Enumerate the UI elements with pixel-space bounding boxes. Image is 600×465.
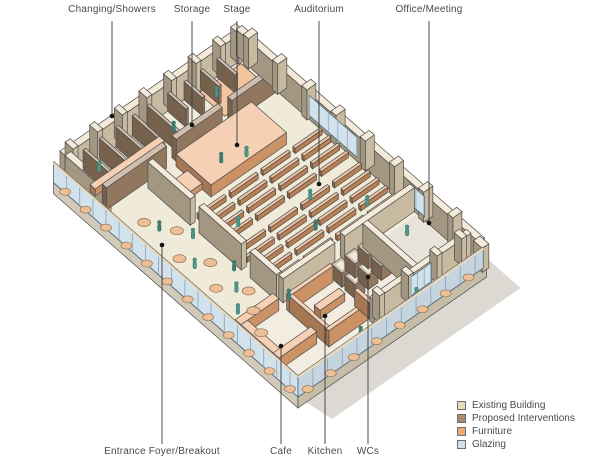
- legend-item-proposed: Proposed Interventions: [457, 412, 575, 425]
- legend-label: Existing Building: [472, 400, 545, 411]
- legend-label: Proposed Interventions: [472, 413, 575, 424]
- glazing-swatch: [457, 440, 466, 449]
- label-storage: Storage: [174, 4, 210, 15]
- legend-item-glazing: Glazing: [457, 438, 575, 451]
- label-office-meeting: Office/Meeting: [395, 4, 462, 15]
- legend-item-existing: Existing Building: [457, 399, 575, 412]
- existing-building-swatch: [457, 401, 466, 410]
- floor-plan-canvas: Changing/Showers Storage Stage Auditoriu…: [0, 0, 600, 465]
- label-wcs: WCs: [357, 446, 379, 457]
- label-auditorium: Auditorium: [294, 4, 344, 15]
- label-kitchen: Kitchen: [308, 446, 343, 457]
- legend-item-furniture: Furniture: [457, 425, 575, 438]
- proposed-interventions-swatch: [457, 414, 466, 423]
- furniture-swatch: [457, 427, 466, 436]
- legend-label: Furniture: [472, 426, 512, 437]
- legend-label: Glazing: [472, 439, 506, 450]
- label-stage: Stage: [223, 4, 250, 15]
- label-changing-showers: Changing/Showers: [68, 4, 156, 15]
- axonometric-drawing: [0, 0, 600, 465]
- label-cafe: Cafe: [270, 446, 292, 457]
- label-entrance-foyer: Entrance Foyer/Breakout: [104, 446, 220, 457]
- legend: Existing Building Proposed Interventions…: [457, 399, 575, 451]
